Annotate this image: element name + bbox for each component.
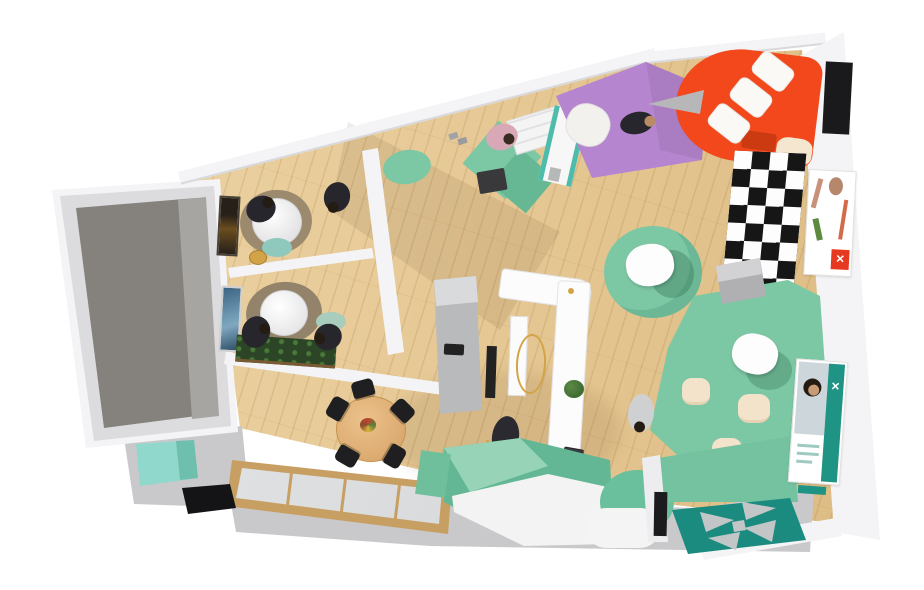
black-wall-panel <box>822 61 853 134</box>
cream-pouf <box>682 378 710 405</box>
poster-text-line <box>796 460 812 464</box>
teal-floor-patch <box>415 450 451 498</box>
poster-art-stroke <box>838 200 848 240</box>
red-brand-poster: ✕ <box>803 169 856 277</box>
flower-bouquet <box>360 418 376 432</box>
mosaic-center <box>732 520 746 532</box>
cream-pouf <box>738 394 770 423</box>
coffee-machine <box>444 343 465 355</box>
poster-text-line <box>797 444 819 449</box>
floorplan-render: ✕ ✕ <box>0 0 924 590</box>
meeting-room-1-gold-stool <box>249 250 267 265</box>
counter-gold-fitting <box>568 288 574 294</box>
entry-mosaic-mat <box>672 498 806 554</box>
poster-art-stroke <box>812 218 822 241</box>
brand-x-logo: ✕ <box>831 249 850 270</box>
meeting-room-1-wall-art <box>216 195 240 256</box>
poster-art-stroke <box>811 178 824 208</box>
black-door <box>654 492 668 536</box>
poster-text-line <box>797 452 819 457</box>
black-shelf-strip <box>485 346 497 398</box>
teal-brand-poster: ✕ <box>788 358 849 485</box>
poster-art-stroke <box>828 177 843 196</box>
potted-plant <box>564 380 584 398</box>
